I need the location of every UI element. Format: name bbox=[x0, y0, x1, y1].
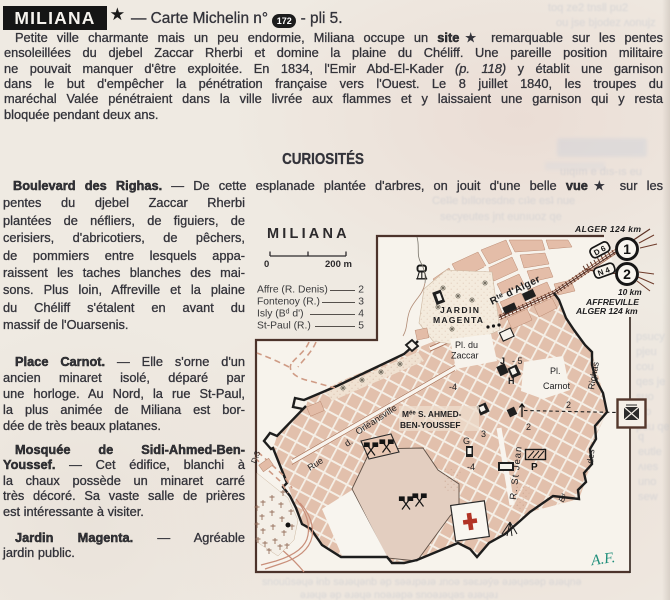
svg-text:ALGER 124 km: ALGER 124 km bbox=[575, 306, 638, 316]
svg-text:Isly (Bd d'): Isly (Bd d') bbox=[257, 309, 304, 320]
svg-text:2: 2 bbox=[358, 285, 364, 296]
svg-text:2: 2 bbox=[623, 266, 631, 282]
svg-text:Pl. du: Pl. du bbox=[455, 340, 478, 350]
svg-text:4: 4 bbox=[358, 309, 364, 320]
svg-text:Pl.: Pl. bbox=[550, 366, 561, 376]
svg-text:1: 1 bbox=[623, 241, 631, 257]
svg-text:3: 3 bbox=[481, 429, 486, 439]
svg-text:Affre (R. Denis): Affre (R. Denis) bbox=[257, 285, 328, 296]
svg-text:Carnot: Carnot bbox=[543, 381, 571, 391]
svg-text:MILIANA: MILIANA bbox=[267, 226, 350, 242]
svg-text:2: 2 bbox=[566, 400, 571, 410]
svg-text:H: H bbox=[508, 376, 515, 386]
svg-text:0: 0 bbox=[264, 259, 269, 270]
svg-text:2: 2 bbox=[526, 422, 531, 432]
svg-text:Fontenoy (R.): Fontenoy (R.) bbox=[257, 297, 320, 308]
svg-text:JARDIN: JARDIN bbox=[440, 305, 480, 315]
svg-text:-4: -4 bbox=[449, 382, 457, 392]
svg-text:200 m: 200 m bbox=[325, 259, 352, 270]
svg-text:10 km: 10 km bbox=[618, 287, 642, 297]
svg-text:J: J bbox=[500, 356, 505, 366]
svg-text:St-Paul (R.): St-Paul (R.) bbox=[257, 321, 311, 332]
svg-text:MAGENTA: MAGENTA bbox=[433, 315, 484, 325]
svg-text:3: 3 bbox=[358, 297, 364, 308]
svg-text:5: 5 bbox=[358, 321, 364, 332]
svg-text:ALGER 124 km: ALGER 124 km bbox=[574, 224, 641, 234]
svg-text:P: P bbox=[531, 462, 538, 473]
svg-text:des: des bbox=[585, 448, 597, 464]
svg-text:-4: -4 bbox=[467, 462, 475, 472]
svg-text:- 5: - 5 bbox=[512, 356, 523, 366]
svg-text:G: G bbox=[463, 436, 470, 446]
svg-text:BEN-YOUSSEF: BEN-YOUSSEF bbox=[400, 420, 461, 430]
svg-text:Zaccar: Zaccar bbox=[451, 351, 479, 361]
